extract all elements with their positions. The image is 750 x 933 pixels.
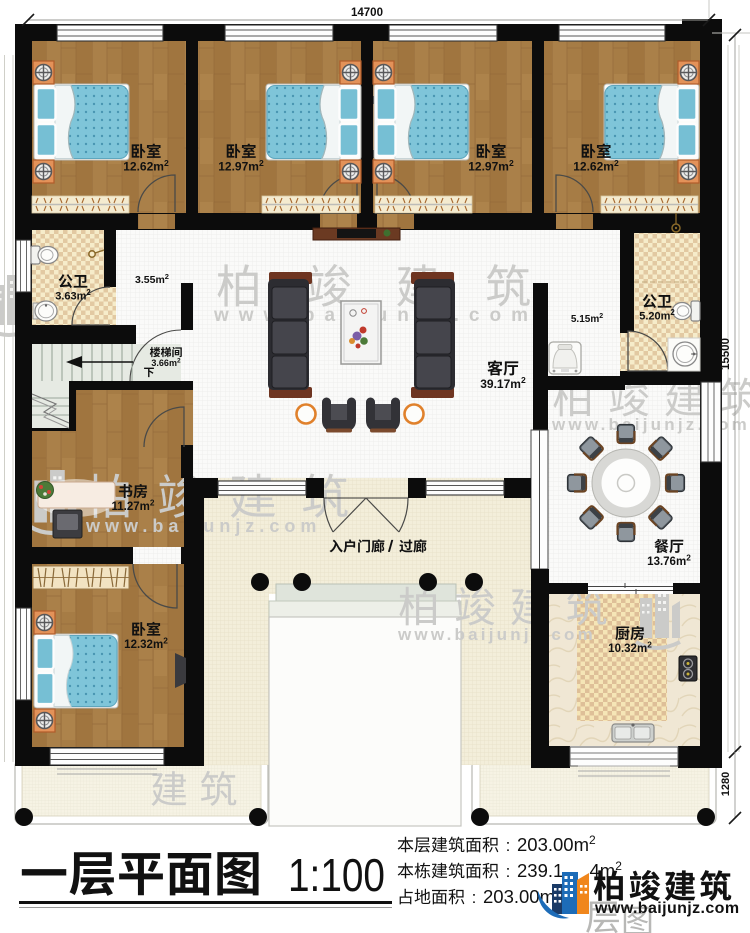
svg-text:14700: 14700 [351,7,383,19]
svg-text:203.00m2: 203.00m2 [483,885,562,907]
svg-text:3.55m2: 3.55m2 [135,272,169,286]
svg-text:5.15m2: 5.15m2 [571,313,603,325]
svg-text::: : [506,836,511,855]
svg-text::: : [472,888,477,907]
svg-text:1:100: 1:100 [288,849,385,901]
svg-text:12.97m2: 12.97m2 [468,158,514,174]
svg-text:12.62m2: 12.62m2 [573,158,619,174]
svg-text:39.17m2: 39.17m2 [480,375,526,391]
svg-text:1280: 1280 [720,772,732,796]
svg-text:203.00m2: 203.00m2 [517,833,596,855]
svg-text:www.baijunjz.com: www.baijunjz.com [397,625,596,644]
svg-text:3.66m2: 3.66m2 [151,358,181,369]
svg-text:3.63m2: 3.63m2 [55,288,91,302]
svg-text:12.97m2: 12.97m2 [218,158,264,174]
svg-text:15500: 15500 [720,338,732,370]
svg-text::: : [506,862,511,881]
svg-text:12.62m2: 12.62m2 [123,158,169,174]
svg-text:www.baijunjz.com: www.baijunjz.com [594,900,740,917]
svg-text:239.1: 239.1 [517,860,563,881]
svg-text:5.20m2: 5.20m2 [639,308,675,322]
